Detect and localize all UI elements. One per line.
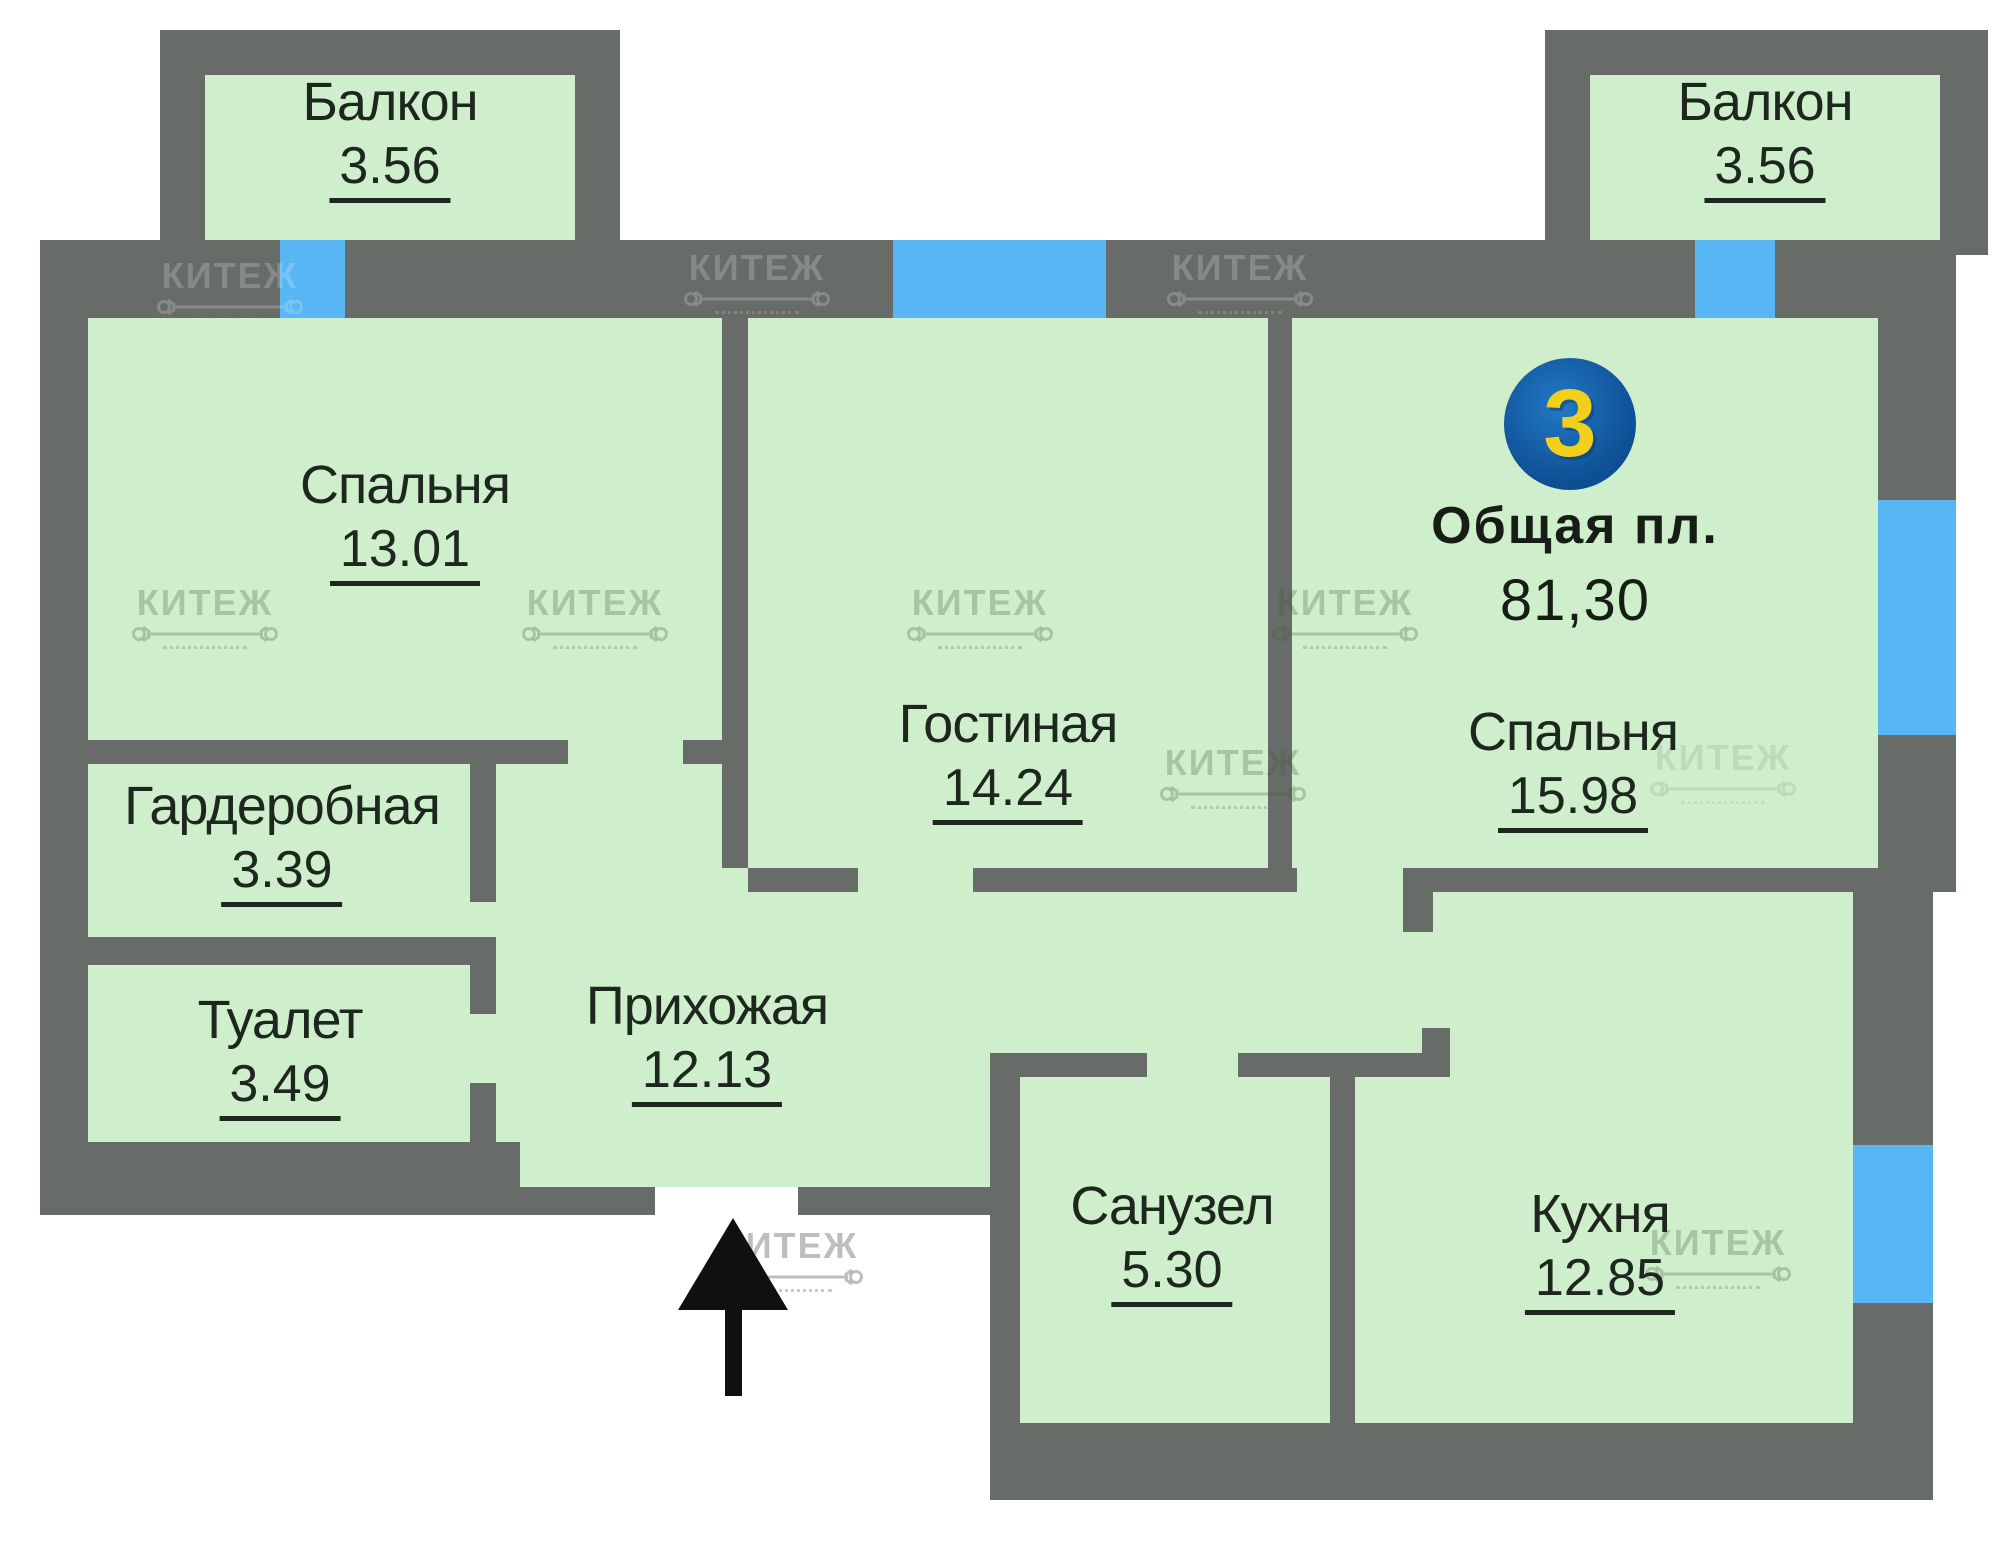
room-area: 15.98 — [1498, 768, 1648, 833]
room-fill-right-lower — [996, 892, 1855, 1423]
room-label-kitchen: Кухня 12.85 — [1525, 1184, 1675, 1315]
room-label-wardrobe: Гардеробная 3.39 — [124, 776, 440, 907]
wall — [683, 740, 748, 764]
wall — [520, 1187, 655, 1215]
total-area-label: Общая пл. — [1431, 498, 1719, 554]
wall — [973, 868, 1297, 892]
room-name: Туалет — [198, 990, 363, 1050]
wall — [1590, 240, 1695, 318]
wall — [1422, 1028, 1450, 1077]
wall — [160, 30, 620, 75]
wall — [470, 762, 496, 902]
floor-plan: Балкон 3.56 Балкон 3.56 Спальня 13.01 Га… — [0, 0, 2000, 1542]
window — [280, 240, 345, 318]
wall — [160, 30, 205, 255]
room-label-bedroom-1: Спальня 13.01 — [300, 455, 510, 586]
room-area: 3.49 — [219, 1056, 340, 1121]
wall — [1545, 30, 1590, 255]
wall — [990, 1053, 1147, 1077]
room-name: Гостиная — [899, 694, 1118, 754]
wall — [1940, 30, 1988, 255]
room-label-balcony-left: Балкон 3.56 — [302, 72, 477, 203]
wall — [1403, 868, 1878, 892]
entrance-arrow-icon — [678, 1218, 788, 1310]
room-name: Балкон — [1677, 72, 1852, 132]
room-area: 13.01 — [330, 521, 480, 586]
total-area: Общая пл. 81,30 — [1431, 498, 1719, 632]
wall — [1878, 735, 1956, 892]
room-area: 12.85 — [1525, 1250, 1675, 1315]
unit-number-badge: 3 — [1504, 358, 1636, 490]
wall — [798, 1187, 994, 1215]
unit-number: 3 — [1543, 376, 1596, 472]
room-area: 12.13 — [632, 1042, 782, 1107]
wall — [575, 30, 620, 255]
wall — [470, 1083, 496, 1144]
window — [1853, 1145, 1933, 1303]
room-name: Кухня — [1525, 1184, 1675, 1244]
room-name: Гардеробная — [124, 776, 440, 836]
room-label-bathroom: Санузел 5.30 — [1070, 1176, 1273, 1307]
room-label-hallway: Прихожая 12.13 — [586, 976, 828, 1107]
wall — [470, 965, 496, 1014]
wall — [1403, 892, 1433, 932]
entrance-arrow-stem — [725, 1306, 742, 1396]
wall — [1238, 1053, 1422, 1077]
window — [1878, 500, 1956, 735]
room-label-bedroom-2: Спальня 15.98 — [1468, 702, 1678, 833]
window — [1695, 240, 1775, 318]
room-label-living-room: Гостиная 14.24 — [899, 694, 1118, 825]
wall — [1268, 315, 1292, 868]
room-label-toilet: Туалет 3.49 — [198, 990, 363, 1121]
wall — [40, 240, 88, 1215]
window — [893, 240, 1106, 318]
room-name: Балкон — [302, 72, 477, 132]
wall — [88, 740, 568, 764]
room-label-balcony-right: Балкон 3.56 — [1677, 72, 1852, 203]
room-area: 3.56 — [1704, 138, 1825, 203]
wall — [1330, 1077, 1355, 1425]
wall — [1878, 240, 1956, 500]
room-area: 3.39 — [221, 842, 342, 907]
wall — [722, 315, 748, 868]
wall — [990, 1423, 1933, 1500]
room-name: Санузел — [1070, 1176, 1273, 1236]
room-area: 3.56 — [329, 138, 450, 203]
wall — [990, 1053, 1020, 1425]
wall — [88, 937, 496, 965]
room-name: Спальня — [300, 455, 510, 515]
wall — [345, 240, 893, 318]
wall — [748, 868, 858, 892]
room-name: Спальня — [1468, 702, 1678, 762]
wall — [1106, 240, 1590, 318]
total-area-value: 81,30 — [1431, 570, 1719, 632]
wall — [40, 1142, 520, 1215]
wall — [1545, 30, 1985, 75]
room-area: 5.30 — [1111, 1242, 1232, 1307]
wall — [1853, 892, 1933, 1145]
room-area: 14.24 — [933, 760, 1083, 825]
room-name: Прихожая — [586, 976, 828, 1036]
